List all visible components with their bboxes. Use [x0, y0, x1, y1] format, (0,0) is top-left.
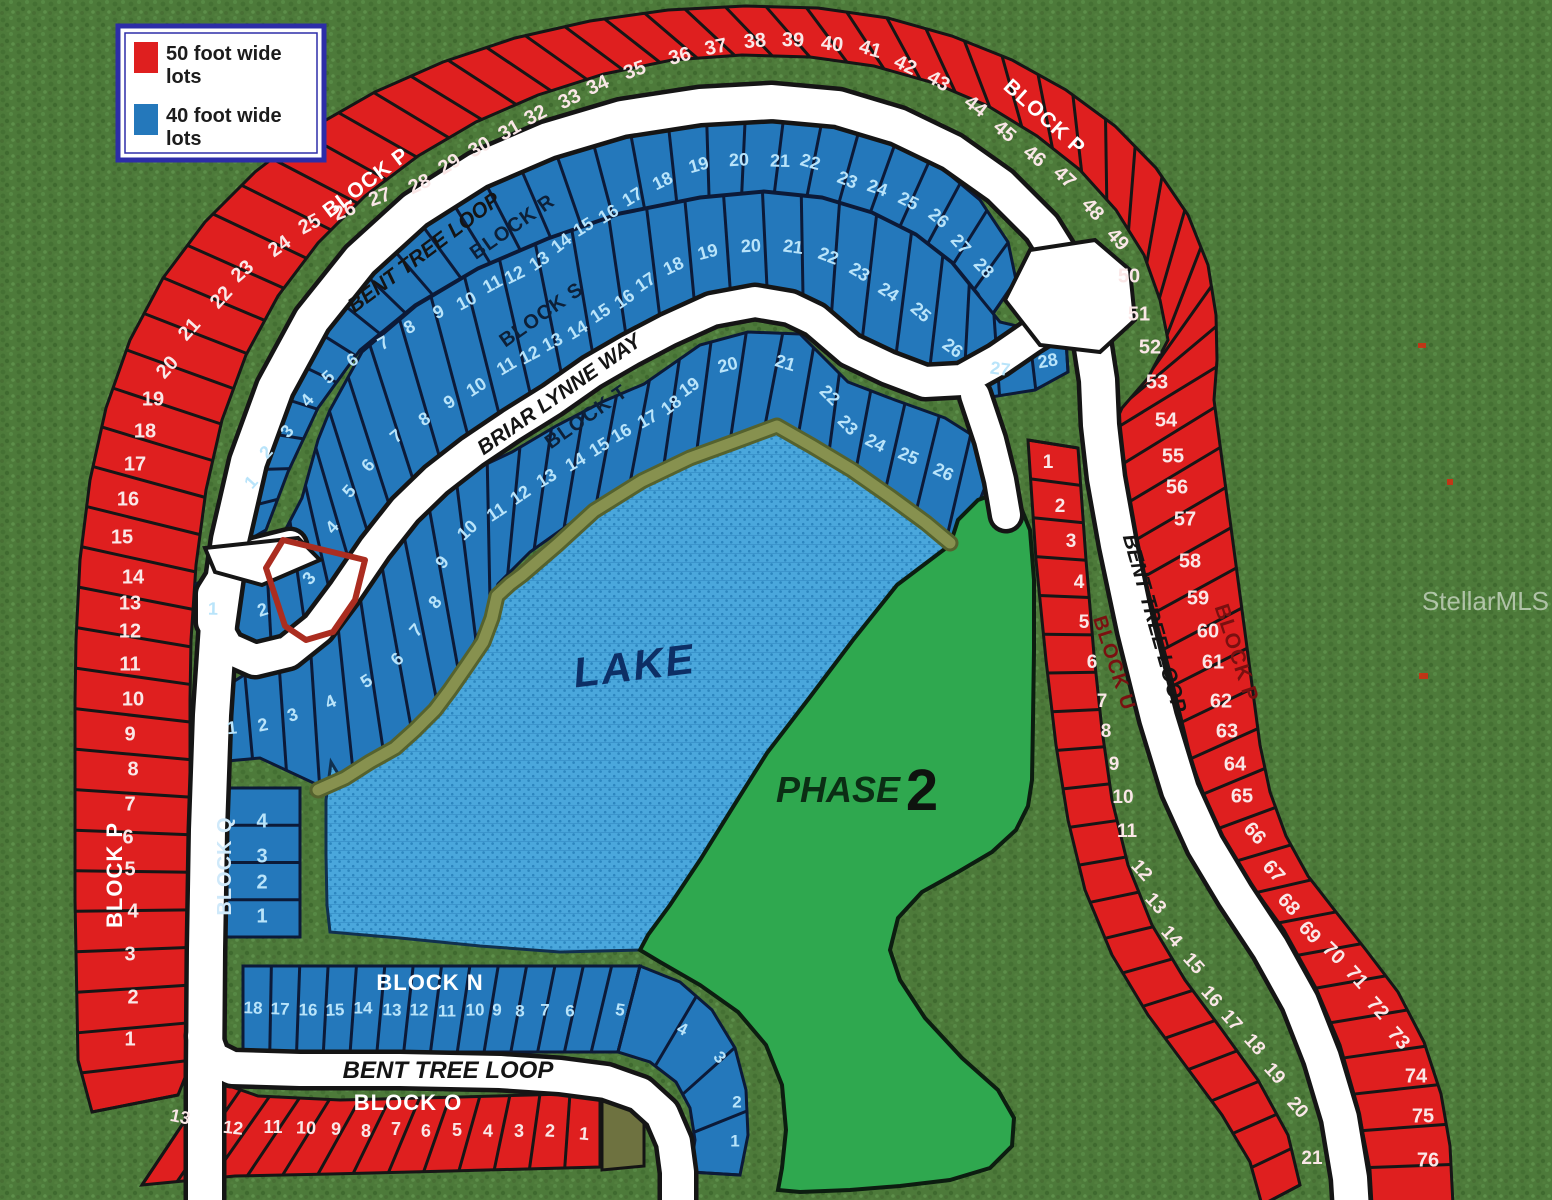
lot-Q-4: 4: [256, 810, 268, 832]
lot-O-5: 5: [452, 1120, 462, 1140]
legend-50ft-line2: lots: [166, 66, 202, 88]
lot-O-4: 4: [483, 1121, 493, 1141]
lot-P-37: 37: [703, 34, 729, 60]
lot-N-1: 1: [730, 1131, 739, 1150]
lot-S-20: 20: [740, 235, 761, 256]
lot-Q-1: 1: [256, 905, 267, 927]
lot-O-13: 13: [168, 1105, 192, 1129]
lot-U-9: 9: [1109, 754, 1120, 775]
lot-P-2: 2: [127, 986, 138, 1008]
lot-T-1: 1: [226, 717, 238, 738]
lot-O-9: 9: [331, 1119, 342, 1139]
lot-N-18: 18: [243, 998, 263, 1018]
lot-P-14: 14: [122, 566, 145, 588]
lot-U-8: 8: [1101, 721, 1112, 742]
lot-N-9: 9: [492, 1000, 502, 1019]
lot-U-11: 11: [1117, 821, 1138, 842]
lot-P-55: 55: [1162, 445, 1184, 467]
lot-N-13: 13: [382, 1000, 402, 1020]
lot-N-11: 11: [438, 1001, 456, 1020]
lot-P-38: 38: [743, 29, 767, 53]
lot-P-53: 53: [1146, 371, 1168, 393]
lot-N-16: 16: [298, 1000, 317, 1019]
lot-P-50: 50: [1118, 265, 1140, 287]
lot-U-5: 5: [1079, 612, 1090, 633]
lot-P-56: 56: [1166, 476, 1188, 498]
legend-40ft-line2: lots: [166, 128, 202, 150]
lot-O-8: 8: [361, 1121, 371, 1141]
lot-P-75: 75: [1412, 1105, 1434, 1127]
lot-Q-2: 2: [256, 871, 267, 893]
lot-P-7: 7: [124, 793, 135, 815]
lot-P-58: 58: [1179, 550, 1201, 572]
phase-number: 2: [906, 758, 938, 823]
lot-P-39: 39: [781, 29, 804, 52]
bent-tree-loop-label-bottom: BENT TREE LOOP: [343, 1057, 555, 1084]
lot-P-54: 54: [1155, 409, 1178, 431]
lot-O-11: 11: [263, 1117, 282, 1137]
red-speck-1: [1418, 343, 1426, 348]
lot-O-3: 3: [514, 1121, 524, 1141]
block-U-divider: [1040, 595, 1090, 597]
lot-O-1: 1: [578, 1123, 590, 1144]
lot-U-21: 21: [1301, 1148, 1323, 1169]
lot-P-64: 64: [1224, 753, 1247, 775]
lot-S-21: 21: [782, 236, 804, 258]
lot-O-7: 7: [391, 1119, 401, 1139]
lot-R-21: 21: [770, 150, 791, 171]
lot-S-28: 28: [1036, 349, 1059, 372]
lot-P-52: 52: [1139, 336, 1161, 358]
lot-P-40: 40: [820, 32, 845, 56]
lot-S-27: 27: [989, 358, 1012, 381]
legend-50ft-line1: 50 foot wide: [166, 43, 282, 65]
block-o-label: BLOCK O: [354, 1090, 462, 1115]
lot-P-74: 74: [1405, 1065, 1428, 1087]
lot-P-1: 1: [124, 1028, 135, 1050]
lot-P-11: 11: [119, 653, 140, 675]
legend: 50 foot wide lots 40 foot wide lots: [118, 26, 324, 160]
lot-S-1: 1: [208, 599, 218, 619]
block-U-divider: [1043, 634, 1092, 635]
block-n-label: BLOCK N: [376, 970, 483, 995]
lot-U-1: 1: [1043, 452, 1054, 473]
lot-P-10: 10: [122, 688, 144, 710]
lot-P-18: 18: [134, 420, 156, 442]
lot-P-9: 9: [124, 723, 135, 745]
lot-P-61: 61: [1202, 651, 1224, 673]
plat-map-canvas: 1234567891011121314151617181920212223242…: [0, 0, 1552, 1200]
lot-U-4: 4: [1074, 572, 1085, 593]
lot-O-2: 2: [545, 1121, 556, 1141]
lot-P-8: 8: [127, 758, 138, 780]
lot-U-6: 6: [1087, 652, 1098, 673]
lot-O-12: 12: [222, 1117, 244, 1139]
lot-P-59: 59: [1187, 587, 1209, 609]
lot-U-7: 7: [1097, 691, 1108, 712]
lot-P-3: 3: [124, 943, 135, 965]
lot-N-10: 10: [465, 1000, 484, 1019]
lot-P-63: 63: [1216, 720, 1238, 742]
plat-map: 1234567891011121314151617181920212223242…: [0, 0, 1552, 1200]
lot-U-3: 3: [1066, 531, 1077, 552]
lot-N-6: 6: [565, 1001, 574, 1020]
lot-R-20: 20: [728, 149, 749, 170]
lot-P-19: 19: [142, 388, 164, 410]
lot-P-17: 17: [124, 453, 146, 475]
lot-P-76: 76: [1417, 1149, 1439, 1171]
lot-P-65: 65: [1231, 785, 1253, 807]
lot-Q-3: 3: [256, 845, 267, 867]
block-q-label: BLOCK Q: [214, 816, 236, 915]
lot-P-12: 12: [119, 620, 141, 642]
lot-U-10: 10: [1112, 787, 1133, 808]
legend-swatch-40ft: [134, 104, 158, 135]
red-speck-3: [1419, 673, 1428, 679]
lot-P-57: 57: [1174, 508, 1196, 530]
watermark: StellarMLS: [1422, 586, 1549, 616]
lot-P-16: 16: [117, 488, 139, 510]
lot-N-8: 8: [515, 1001, 524, 1020]
lot-N-14: 14: [354, 998, 373, 1017]
lot-P-15: 15: [111, 526, 133, 548]
lot-N-17: 17: [270, 999, 290, 1019]
lot-P-62: 62: [1210, 690, 1232, 712]
lot-P-4: 4: [127, 900, 139, 922]
legend-40ft-line1: 40 foot wide: [166, 105, 282, 127]
lot-N-2: 2: [732, 1092, 741, 1111]
red-speck-2: [1447, 479, 1453, 485]
lot-U-2: 2: [1055, 496, 1066, 517]
block-P-divider: [1106, 119, 1107, 200]
lot-N-12: 12: [409, 1000, 428, 1019]
legend-swatch-50ft: [134, 42, 158, 73]
lot-O-10: 10: [296, 1117, 317, 1138]
lot-P-13: 13: [119, 592, 141, 614]
phase-label: PHASE: [776, 769, 901, 810]
lot-O-6: 6: [421, 1121, 431, 1141]
block-p-label-left: BLOCK P: [102, 822, 127, 928]
lot-N-7: 7: [540, 1000, 549, 1019]
lot-N-15: 15: [325, 1000, 345, 1020]
lot-P-51: 51: [1128, 303, 1150, 325]
